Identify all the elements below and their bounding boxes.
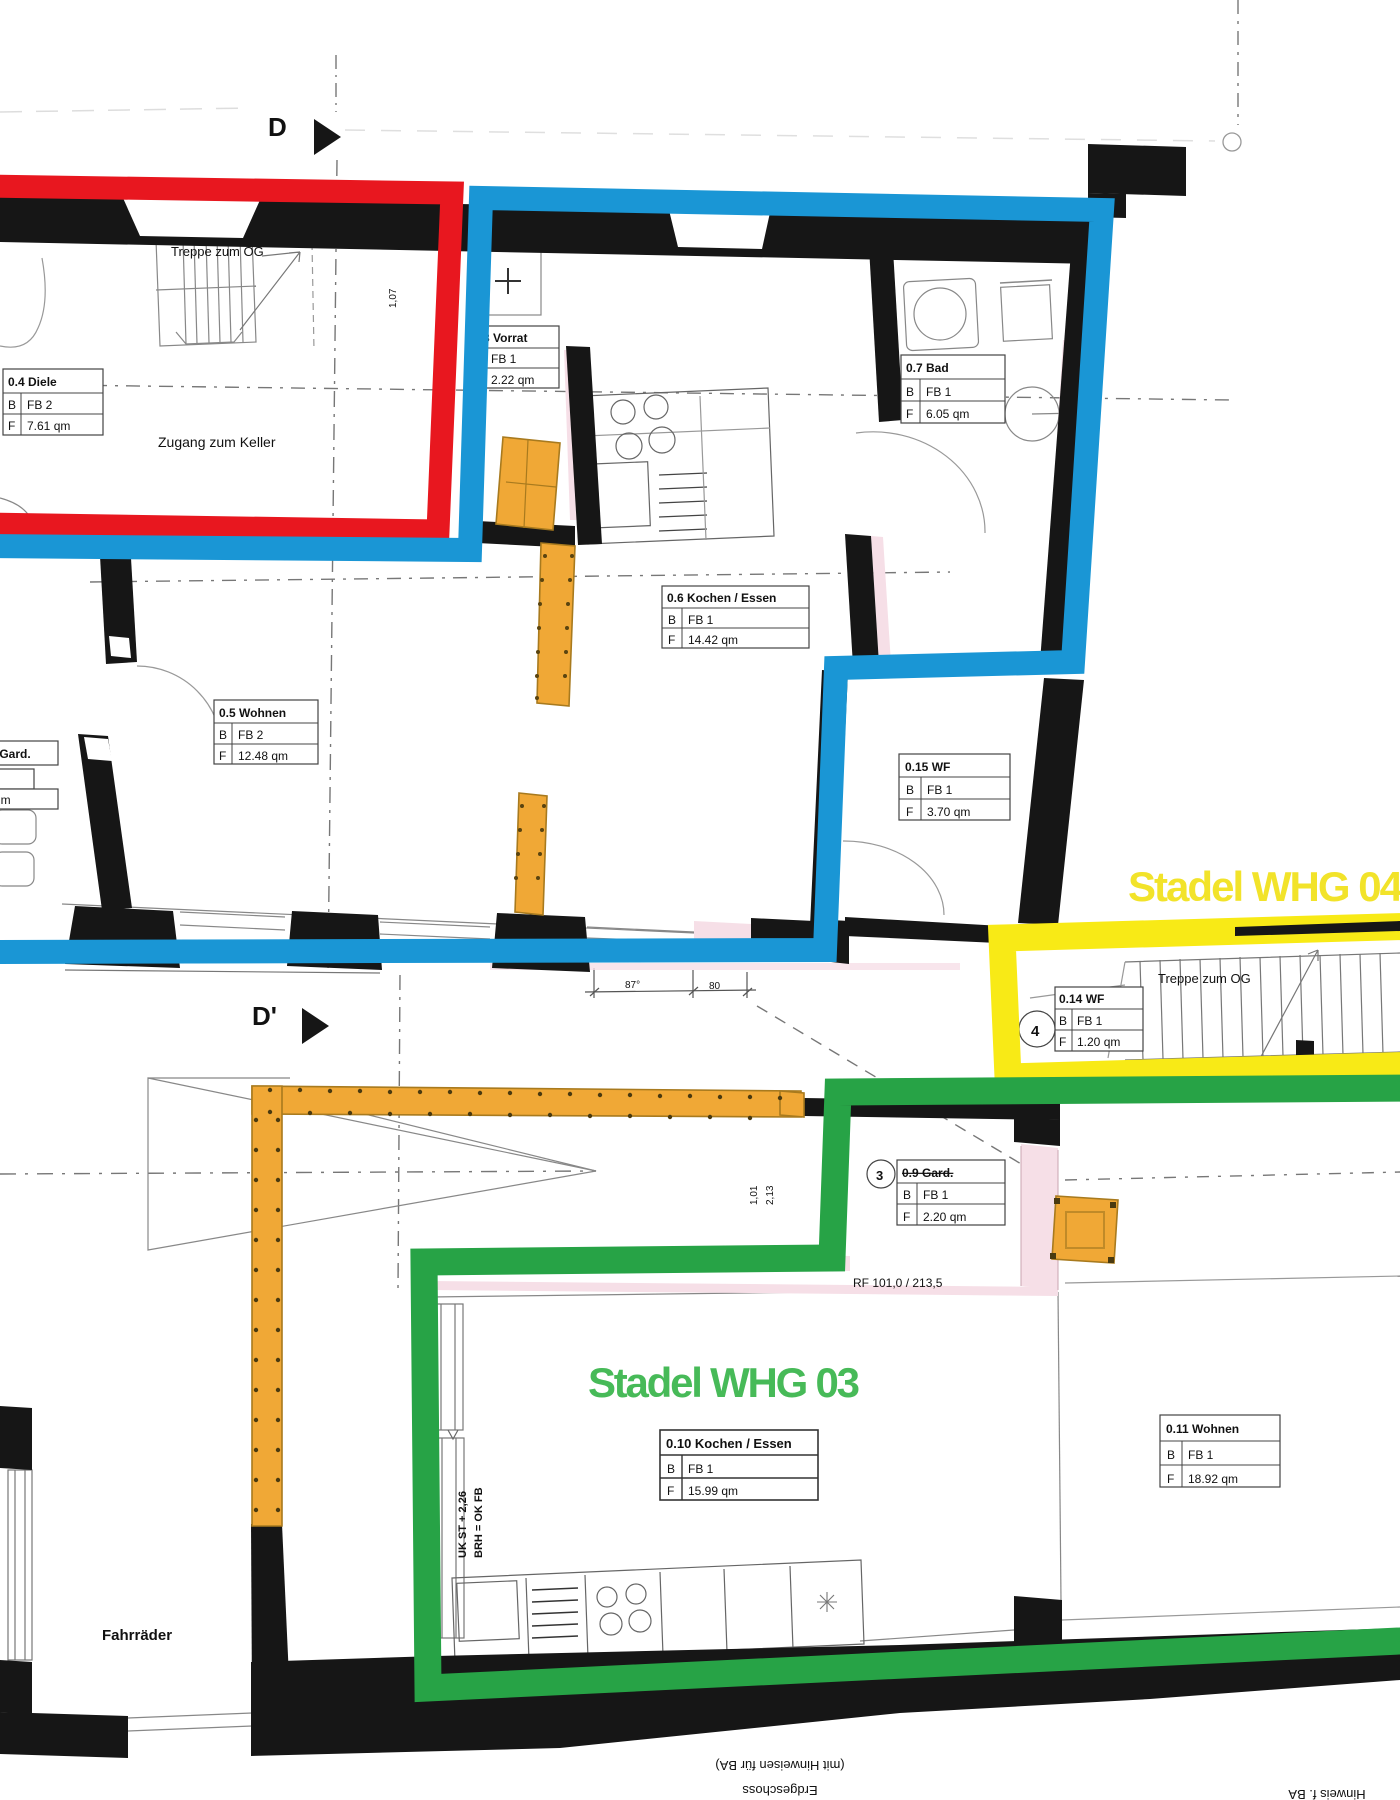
svg-text:F: F bbox=[1167, 1472, 1174, 1486]
svg-text:F: F bbox=[1059, 1035, 1066, 1049]
svg-text:80: 80 bbox=[709, 981, 721, 992]
svg-text:3.70 qm: 3.70 qm bbox=[927, 805, 970, 819]
svg-text:2.22 qm: 2.22 qm bbox=[491, 373, 534, 387]
svg-text:0.6 Kochen / Essen: 0.6 Kochen / Essen bbox=[667, 591, 776, 605]
svg-text:BRH = OK FB: BRH = OK FB bbox=[473, 1487, 485, 1558]
svg-text:B: B bbox=[1167, 1448, 1175, 1462]
svg-text:FB 1: FB 1 bbox=[1188, 1448, 1214, 1462]
svg-text:0.10 Kochen / Essen: 0.10 Kochen / Essen bbox=[666, 1436, 792, 1451]
svg-text:Treppe zum OG: Treppe zum OG bbox=[171, 244, 264, 259]
svg-text:Erdgeschoss: Erdgeschoss bbox=[742, 1783, 818, 1798]
svg-text:0.4 Diele: 0.4 Diele bbox=[8, 375, 57, 389]
svg-text:FB 1: FB 1 bbox=[927, 783, 953, 797]
svg-text:Fahrräder: Fahrräder bbox=[102, 1627, 172, 1644]
svg-text:UK ST + 2,26: UK ST + 2,26 bbox=[457, 1491, 469, 1558]
svg-text:RF 101,0 / 213,5: RF 101,0 / 213,5 bbox=[853, 1276, 943, 1290]
svg-text:FB 1: FB 1 bbox=[926, 385, 952, 399]
svg-text:1,01: 1,01 bbox=[749, 1185, 760, 1205]
svg-text:B: B bbox=[667, 1462, 675, 1476]
svg-text:FB 1: FB 1 bbox=[491, 352, 517, 366]
svg-text:0.5 Wohnen: 0.5 Wohnen bbox=[219, 706, 286, 720]
svg-text:0.7 Bad: 0.7 Bad bbox=[906, 361, 949, 375]
svg-text:F: F bbox=[906, 805, 913, 819]
svg-text:F: F bbox=[667, 1484, 674, 1498]
svg-text:6.05 qm: 6.05 qm bbox=[926, 407, 969, 421]
svg-text:B: B bbox=[8, 398, 16, 412]
svg-text:0.15 WF: 0.15 WF bbox=[905, 760, 950, 774]
svg-text:3 Vorrat: 3 Vorrat bbox=[483, 331, 527, 345]
svg-text:1.20 qm: 1.20 qm bbox=[1077, 1035, 1120, 1049]
svg-text:0.14 WF: 0.14 WF bbox=[1059, 992, 1104, 1006]
svg-text:1,07: 1,07 bbox=[388, 288, 399, 308]
svg-text:B: B bbox=[906, 385, 914, 399]
svg-text:Stadel WHG 04: Stadel WHG 04 bbox=[1128, 863, 1400, 910]
svg-text:FB 2: FB 2 bbox=[238, 728, 264, 742]
svg-text:FB 1: FB 1 bbox=[688, 1462, 714, 1476]
svg-text:87°: 87° bbox=[625, 980, 640, 991]
svg-text:FB 1: FB 1 bbox=[923, 1188, 949, 1202]
svg-text:B: B bbox=[219, 728, 227, 742]
svg-text:Hinweis f. BA: Hinweis f. BA bbox=[1288, 1787, 1366, 1800]
svg-text:D': D' bbox=[252, 1001, 277, 1031]
svg-text:18.92 qm: 18.92 qm bbox=[1188, 1472, 1238, 1486]
svg-text:3 qm: 3 qm bbox=[0, 793, 11, 807]
svg-text:12.48 qm: 12.48 qm bbox=[238, 749, 288, 763]
svg-text:B: B bbox=[906, 783, 914, 797]
svg-text:FB 2: FB 2 bbox=[27, 398, 53, 412]
svg-text:B: B bbox=[668, 613, 676, 627]
svg-text:4: 4 bbox=[1031, 1023, 1040, 1040]
svg-text:7.61 qm: 7.61 qm bbox=[27, 419, 70, 433]
svg-text:14.42 qm: 14.42 qm bbox=[688, 633, 738, 647]
svg-text:0.9 Gard.: 0.9 Gard. bbox=[902, 1166, 953, 1180]
svg-text:(mit Hinweisen für BA): (mit Hinweisen für BA) bbox=[715, 1758, 844, 1773]
svg-text:F: F bbox=[668, 633, 675, 647]
svg-text:3: 3 bbox=[876, 1168, 883, 1183]
svg-text:2.20 qm: 2.20 qm bbox=[923, 1210, 966, 1224]
svg-text:Stadel WHG 03: Stadel WHG 03 bbox=[588, 1359, 860, 1406]
svg-text:F: F bbox=[219, 749, 226, 763]
svg-text:2,13: 2,13 bbox=[765, 1185, 776, 1205]
svg-text:0.2 F / Gard.: 0.2 F / Gard. bbox=[0, 747, 31, 761]
svg-text:F: F bbox=[903, 1210, 910, 1224]
svg-text:F: F bbox=[906, 407, 913, 421]
svg-text:0.11 Wohnen: 0.11 Wohnen bbox=[1166, 1422, 1239, 1436]
svg-text:Treppe zum OG: Treppe zum OG bbox=[1158, 971, 1251, 986]
svg-text:Zugang zum Keller: Zugang zum Keller bbox=[158, 434, 276, 450]
svg-text:FB 1: FB 1 bbox=[1077, 1014, 1103, 1028]
svg-text:F: F bbox=[8, 419, 15, 433]
svg-text:B: B bbox=[1059, 1014, 1067, 1028]
svg-text:15.99 qm: 15.99 qm bbox=[688, 1484, 738, 1498]
svg-text:D: D bbox=[268, 112, 287, 142]
svg-text:B: B bbox=[903, 1188, 911, 1202]
svg-text:FB 1: FB 1 bbox=[688, 613, 714, 627]
